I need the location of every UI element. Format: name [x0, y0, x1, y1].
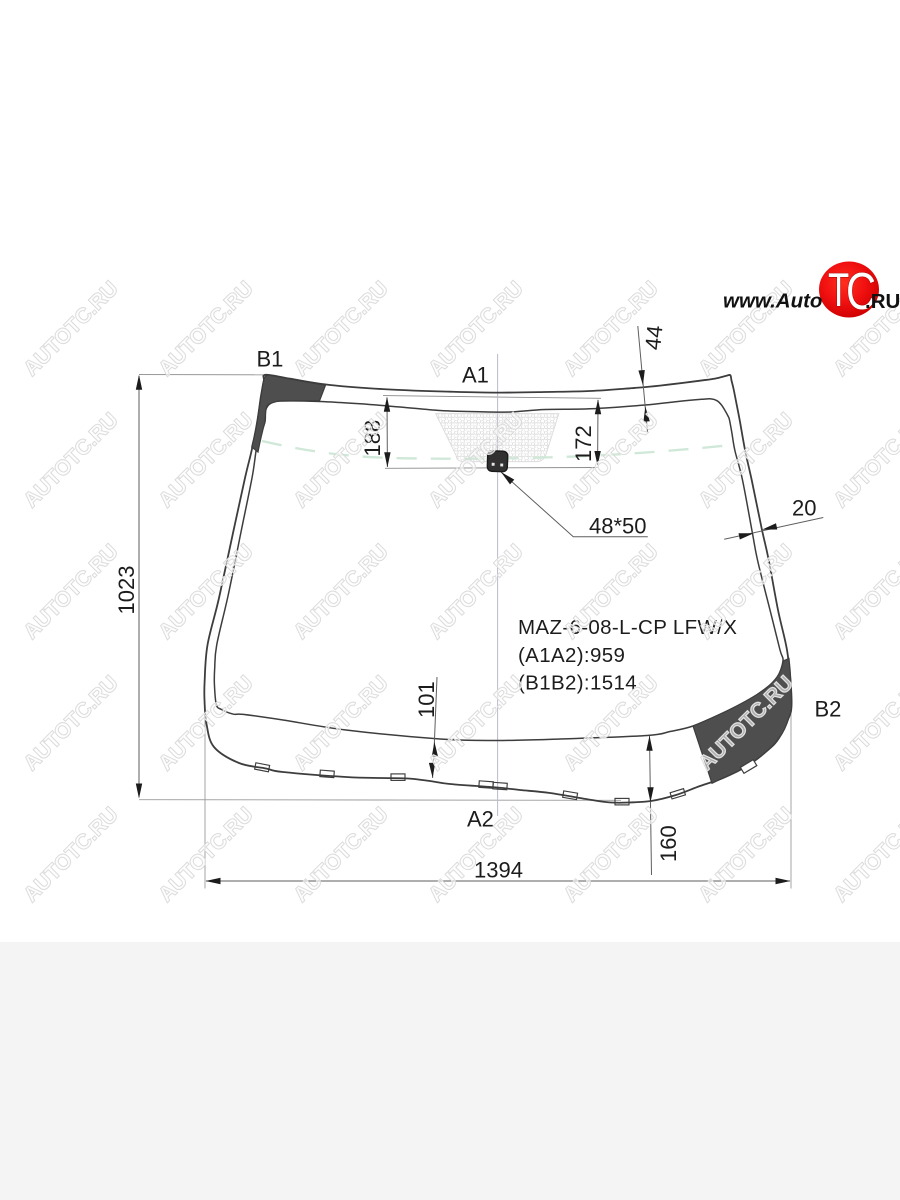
svg-text:20: 20: [792, 496, 816, 521]
svg-text:(A1A2):959: (A1A2):959: [518, 644, 625, 667]
svg-text:AUTOTC.RU: AUTOTC.RU: [154, 672, 257, 775]
svg-text:B2: B2: [815, 697, 842, 722]
svg-text:AUTOTC.RU: AUTOTC.RU: [289, 803, 392, 906]
svg-text:A1: A1: [462, 363, 489, 388]
svg-text:44: 44: [640, 324, 667, 351]
svg-text:160: 160: [656, 825, 681, 862]
svg-text:AUTOTC.RU: AUTOTC.RU: [19, 803, 122, 906]
svg-text:www.Auto: www.Auto: [723, 290, 822, 313]
svg-text:AUTOTC.RU: AUTOTC.RU: [154, 540, 257, 643]
svg-text:AUTOTC.RU: AUTOTC.RU: [19, 672, 122, 775]
svg-text:48*50: 48*50: [589, 514, 647, 539]
svg-text:AUTOTC.RU: AUTOTC.RU: [559, 803, 662, 906]
svg-text:AUTOTC.RU: AUTOTC.RU: [154, 409, 257, 512]
svg-text:AUTOTC.RU: AUTOTC.RU: [829, 803, 900, 906]
svg-text:AUTOTC.RU: AUTOTC.RU: [289, 409, 392, 512]
svg-text:AUTOTC.RU: AUTOTC.RU: [19, 277, 122, 380]
svg-text:AUTOTC.RU: AUTOTC.RU: [424, 540, 527, 643]
svg-text:(B1B2):1514: (B1B2):1514: [518, 672, 637, 695]
svg-text:.RU: .RU: [865, 290, 900, 313]
svg-text:AUTOTC.RU: AUTOTC.RU: [289, 277, 392, 380]
svg-text:B1: B1: [257, 347, 284, 372]
svg-text:AUTOTC.RU: AUTOTC.RU: [829, 409, 900, 512]
svg-text:AUTOTC.RU: AUTOTC.RU: [19, 409, 122, 512]
svg-text:AUTOTC.RU: AUTOTC.RU: [19, 540, 122, 643]
svg-text:1023: 1023: [114, 566, 139, 615]
svg-text:AUTOTC.RU: AUTOTC.RU: [694, 803, 797, 906]
svg-text:AUTOTC.RU: AUTOTC.RU: [289, 540, 392, 643]
svg-text:AUTOTC.RU: AUTOTC.RU: [154, 803, 257, 906]
svg-text:172: 172: [571, 425, 596, 462]
svg-text:AUTOTC.RU: AUTOTC.RU: [424, 672, 527, 775]
svg-text:101: 101: [414, 681, 439, 718]
svg-text:AUTOTC.RU: AUTOTC.RU: [829, 672, 900, 775]
svg-text:AUTOTC.RU: AUTOTC.RU: [829, 540, 900, 643]
svg-text:AUTOTC.RU: AUTOTC.RU: [154, 277, 257, 380]
